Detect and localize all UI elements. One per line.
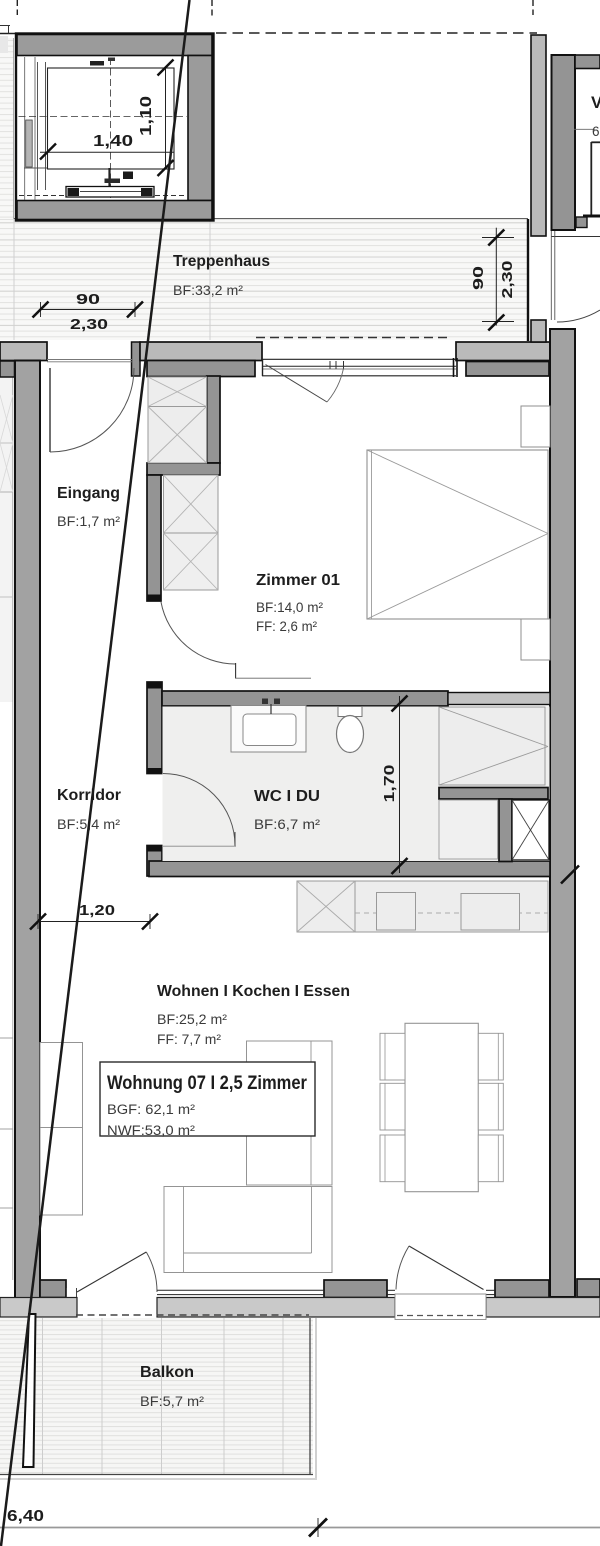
svg-text:Korridor: Korridor	[57, 787, 121, 804]
svg-text:6,40: 6,40	[7, 1508, 44, 1525]
svg-text:1,20: 1,20	[79, 902, 115, 919]
svg-text:Treppenhaus: Treppenhaus	[173, 253, 270, 270]
svg-text:Eingang: Eingang	[57, 485, 120, 502]
svg-text:BF:1,7 m²: BF:1,7 m²	[57, 514, 121, 529]
svg-text:Zimmer 01: Zimmer 01	[256, 572, 340, 589]
svg-text:BF:33,2 m²: BF:33,2 m²	[173, 283, 244, 298]
svg-text:2,30: 2,30	[70, 316, 108, 333]
svg-text:Vo: Vo	[591, 93, 600, 112]
svg-text:2,30: 2,30	[499, 261, 516, 299]
svg-text:BF:6,7 m²: BF:6,7 m²	[254, 817, 321, 832]
svg-text:WC I DU: WC I DU	[254, 788, 320, 805]
svg-text:90: 90	[470, 266, 487, 290]
svg-text:1,10: 1,10	[138, 96, 155, 136]
svg-text:1,40: 1,40	[93, 133, 133, 150]
svg-text:NWF:53,0 m²: NWF:53,0 m²	[107, 1123, 196, 1138]
svg-text:FF: 2,6 m²: FF: 2,6 m²	[256, 619, 317, 634]
svg-text:BGF: 62,1 m²: BGF: 62,1 m²	[107, 1102, 196, 1117]
svg-text:BF:5,7 m²: BF:5,7 m²	[140, 1394, 205, 1409]
svg-text:6: 6	[592, 124, 600, 139]
svg-text:BF:25,2 m²: BF:25,2 m²	[157, 1012, 228, 1027]
svg-text:Balkon: Balkon	[140, 1364, 194, 1381]
svg-text:Wohnung 07 I 2,5 Zimmer: Wohnung 07 I 2,5 Zimmer	[107, 1073, 308, 1094]
svg-text:1,70: 1,70	[381, 765, 398, 803]
svg-text:BF:14,0 m²: BF:14,0 m²	[256, 600, 323, 615]
svg-text:90: 90	[76, 291, 100, 308]
svg-text:FF: 7,7 m²: FF: 7,7 m²	[157, 1032, 222, 1047]
svg-text:Wohnen I Kochen I Essen: Wohnen I Kochen I Essen	[157, 983, 350, 1000]
